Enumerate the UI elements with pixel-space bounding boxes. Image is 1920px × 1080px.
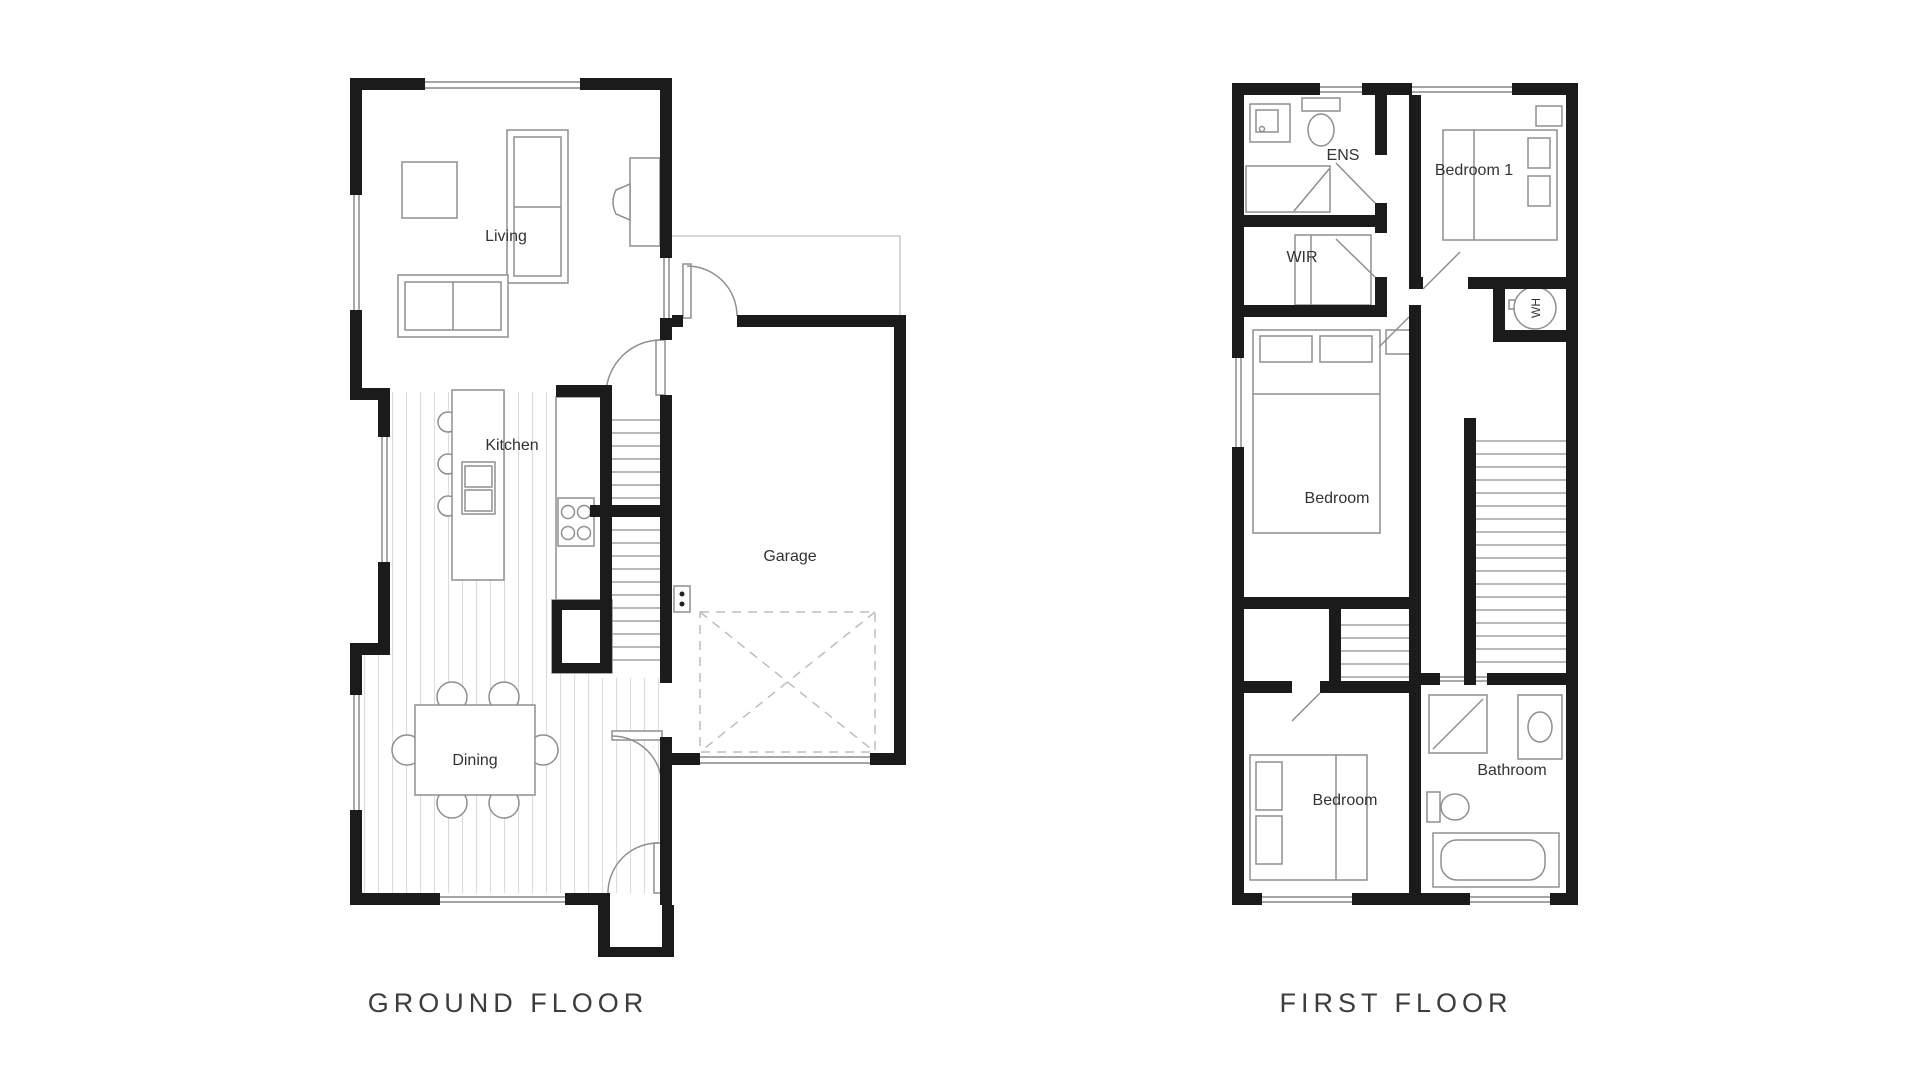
first-floor-plan: ENS WIR Bedroom 1 Bedroom Bedroom Bathro… <box>1232 83 1578 905</box>
wall-segment <box>598 947 674 957</box>
ens-shower <box>1246 166 1330 212</box>
bedroom-rear-label: Bedroom <box>1313 792 1378 809</box>
wall-segment <box>1409 305 1421 317</box>
living-door-swing <box>606 340 661 395</box>
wall-segment <box>552 600 562 673</box>
wall-segment <box>1232 447 1244 893</box>
window-left-dining <box>350 695 362 810</box>
burner <box>562 506 575 519</box>
wir-label: WIR <box>1286 249 1317 266</box>
floor-titles: GROUND FLOOR FIRST FLOOR <box>368 988 1513 1018</box>
wall-segment <box>672 315 683 327</box>
window-glass <box>1412 83 1512 95</box>
bedroom-mid-pillow <box>1320 336 1372 362</box>
bathroom-toilet-bowl <box>1441 794 1469 820</box>
ens-toilet-cistern <box>1302 98 1340 111</box>
garage-parking-marker <box>700 612 875 752</box>
kitchen-label: Kitchen <box>485 437 538 454</box>
island-sink-bowl <box>465 490 492 511</box>
wall-segment <box>350 893 440 905</box>
wall-segment <box>660 78 672 258</box>
wall-segment <box>1232 597 1330 609</box>
wh-label: WH <box>1529 298 1543 318</box>
wall-segment <box>870 753 906 765</box>
wall-segment <box>660 893 672 905</box>
window-left-kitchen <box>378 437 390 562</box>
wall-segment <box>1566 95 1578 893</box>
bedroom1-side-table <box>1536 106 1562 126</box>
ens-toilet-bowl <box>1308 114 1334 146</box>
ens-vanity-tap <box>1260 127 1265 132</box>
bedroom-rear-pillow <box>1256 816 1282 864</box>
wall-segment <box>1505 330 1566 342</box>
wall-segment <box>1362 83 1412 95</box>
window-glass <box>350 195 362 310</box>
wall-segment <box>1329 609 1341 693</box>
floor-plans-svg: Living Kitchen Garage Dining <box>0 0 1920 1080</box>
wall-segment <box>660 318 672 340</box>
power-point <box>674 586 690 612</box>
window-bottom-bathroom <box>1470 893 1550 905</box>
wall-segment <box>1468 277 1566 289</box>
wall-segment <box>350 78 425 90</box>
wall-segment <box>660 737 672 893</box>
wall-segment <box>552 600 602 610</box>
window-bottom-bedroom-rear <box>1262 893 1352 905</box>
dining-label: Dining <box>452 752 497 769</box>
wall-segment <box>1232 305 1381 317</box>
wall-segment <box>378 400 390 437</box>
window-glass <box>1320 83 1362 95</box>
bathroom-label: Bathroom <box>1477 762 1546 779</box>
ground-stairs <box>612 420 660 660</box>
bathroom-toilet-cistern <box>1427 792 1440 822</box>
tv-icon <box>613 184 630 220</box>
wall-segment <box>1409 317 1421 609</box>
wall-segment <box>552 663 612 673</box>
window-glass <box>1232 358 1244 447</box>
wall-segment <box>350 655 362 695</box>
wall-segment <box>565 893 610 905</box>
window-left-living <box>350 195 362 310</box>
garage-door-leaf <box>612 731 662 740</box>
ground-floor-plan: Living Kitchen Garage Dining <box>350 78 906 957</box>
wall-segment <box>1352 893 1470 905</box>
ground-floor-title: GROUND FLOOR <box>368 988 649 1018</box>
window-bottom-dining <box>440 893 565 905</box>
floorboard-area <box>600 678 660 893</box>
wall-segment <box>1411 277 1423 289</box>
dot <box>680 592 685 597</box>
window-glass <box>1262 893 1352 905</box>
wall-segment <box>580 78 672 90</box>
window-glass <box>1470 893 1550 905</box>
wall-segment <box>1409 95 1421 289</box>
wall-segment <box>1320 681 1421 693</box>
bedroom-mid-side-table <box>1386 330 1412 354</box>
wall-segment <box>350 388 390 400</box>
wall-segment <box>1487 673 1566 685</box>
garage-label: Garage <box>763 548 816 565</box>
burner <box>578 527 591 540</box>
front-door-leaf <box>683 264 691 318</box>
bedroom1-pillow <box>1528 138 1550 168</box>
bedroom-rear-door-leaf <box>1292 693 1320 721</box>
wall-segment <box>1421 673 1440 685</box>
wall-segment <box>1464 418 1476 685</box>
wall-segment <box>1409 693 1421 893</box>
wall-segment <box>1232 681 1292 693</box>
window-glass <box>440 893 565 905</box>
wall-segment <box>350 90 362 195</box>
wall-segment <box>1375 203 1387 233</box>
wall-segment <box>600 517 612 673</box>
dining-table <box>415 705 535 795</box>
dot <box>680 602 685 607</box>
tv-unit <box>630 158 660 246</box>
wall-segment <box>556 385 612 397</box>
living-door-leaf <box>656 340 665 395</box>
wall-segment <box>1232 893 1262 905</box>
first-floor-title: FIRST FLOOR <box>1279 988 1512 1018</box>
wall-segment <box>350 643 390 655</box>
wall-segment <box>1512 83 1578 95</box>
wall-segment <box>1409 609 1421 693</box>
wall-segment <box>672 753 700 765</box>
bedroom1-door-leaf <box>1423 252 1460 289</box>
living-label: Living <box>485 228 527 245</box>
bedroom-middle-label: Bedroom <box>1305 490 1370 507</box>
window-left-bedroom-mid <box>1232 358 1244 447</box>
wall-segment <box>378 562 390 643</box>
island-sink-bowl <box>465 466 492 487</box>
bathtub-inner <box>1441 840 1545 880</box>
wall-segment <box>1232 83 1320 95</box>
wall-segment <box>1493 289 1505 342</box>
window-glass <box>350 695 362 810</box>
window-top-living <box>425 78 580 90</box>
wall-segment <box>660 395 672 683</box>
bedroom1-pillow <box>1528 176 1550 206</box>
bedroom-rear-pillow <box>1256 762 1282 810</box>
bedroom1-label: Bedroom 1 <box>1435 162 1513 179</box>
wall-segment <box>590 505 662 517</box>
wall-segment <box>737 315 894 327</box>
wall-segment <box>1232 215 1387 227</box>
window-glass <box>660 258 672 318</box>
floor-plan-page: Living Kitchen Garage Dining <box>0 0 1920 1080</box>
window-top-bedroom1 <box>1412 83 1512 95</box>
window-top-ens <box>1320 83 1362 95</box>
bathroom-basin <box>1528 712 1552 742</box>
wall-segment <box>600 397 612 505</box>
porch-edge-line <box>672 236 900 315</box>
wall-segment <box>350 810 362 893</box>
cooktop <box>558 498 594 546</box>
wall-segment <box>350 310 362 388</box>
burner <box>562 527 575 540</box>
wall-segment <box>894 315 906 765</box>
window-glass <box>378 437 390 562</box>
coffee-table <box>402 162 457 218</box>
window-entry-side <box>660 258 672 318</box>
wall-segment <box>1550 893 1578 905</box>
burner <box>578 506 591 519</box>
front-door-swing <box>687 266 737 316</box>
ground-floorboards <box>362 392 660 893</box>
ens-label: ENS <box>1327 147 1360 164</box>
garage-roller-door <box>700 757 870 763</box>
ens-door-leaf <box>1336 163 1375 203</box>
wall-segment <box>1375 95 1387 155</box>
wall-segment <box>1329 597 1421 609</box>
bedroom-mid-pillow <box>1260 336 1312 362</box>
wir-robe <box>1295 235 1371 305</box>
